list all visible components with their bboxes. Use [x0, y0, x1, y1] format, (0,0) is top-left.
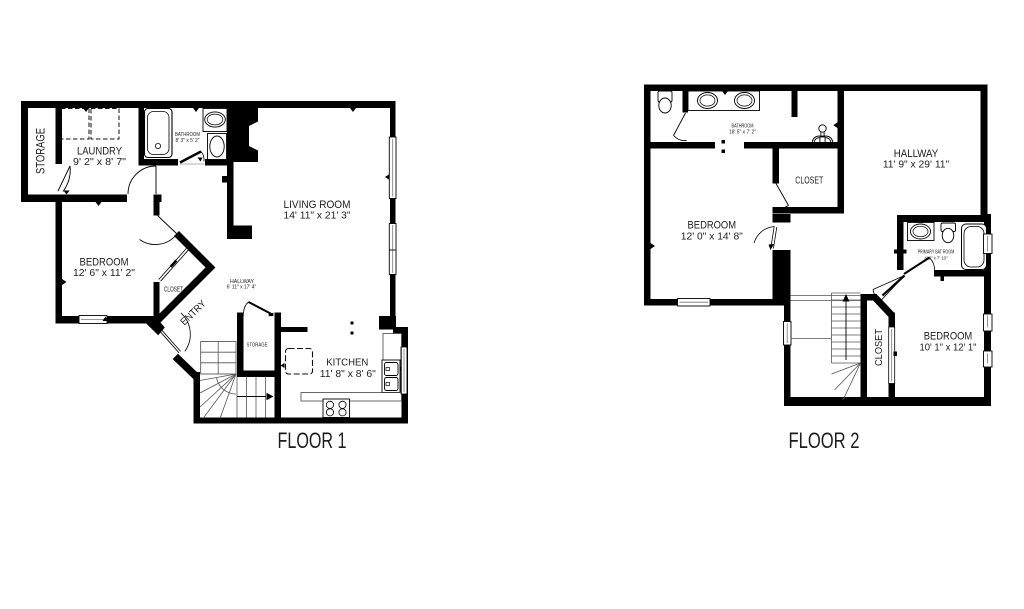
svg-text:11' 9" x 29' 11": 11' 9" x 29' 11": [883, 159, 950, 170]
svg-text:KITCHEN: KITCHEN: [326, 358, 368, 369]
svg-text:STORAGE: STORAGE: [36, 128, 48, 174]
svg-text:BEDROOM: BEDROOM: [688, 219, 737, 231]
svg-text:BEDROOM: BEDROOM: [80, 257, 129, 269]
svg-text:STORAGE: STORAGE: [247, 342, 268, 348]
svg-text:8' 3" x 5' 2": 8' 3" x 5' 2": [176, 138, 200, 144]
svg-text:14' 11" x 21' 3": 14' 11" x 21' 3": [284, 211, 351, 222]
svg-text:FLOOR 2: FLOOR 2: [789, 428, 860, 453]
svg-text:12' 6" x 11' 2": 12' 6" x 11' 2": [73, 268, 135, 279]
svg-text:HALLWAY: HALLWAY: [894, 148, 939, 160]
svg-text:CLOSET: CLOSET: [795, 175, 823, 186]
svg-text:10' 1" x 12' 1": 10' 1" x 12' 1": [920, 343, 977, 354]
svg-text:11' 8" x 8' 6": 11' 8" x 8' 6": [320, 369, 376, 380]
svg-text:CLOSET: CLOSET: [874, 329, 885, 366]
svg-text:LIVING ROOM: LIVING ROOM: [284, 199, 351, 211]
svg-text:6' 11" x 17' 4": 6' 11" x 17' 4": [227, 284, 257, 290]
svg-text:BEDROOM: BEDROOM: [924, 331, 973, 343]
svg-text:18' 5" x 7' 2": 18' 5" x 7' 2": [729, 130, 756, 136]
svg-text:PRIMARY BAT ROOM: PRIMARY BAT ROOM: [918, 250, 955, 256]
svg-text:CLOSET: CLOSET: [164, 287, 183, 294]
svg-text:9' 2" x 8' 7": 9' 2" x 8' 7": [73, 157, 126, 168]
svg-text:FLOOR 1: FLOOR 1: [278, 428, 347, 453]
svg-text:12' 0" x 14' 8": 12' 0" x 14' 8": [681, 231, 743, 242]
svg-text:4' 2" x 7' 10": 4' 2" x 7' 10": [925, 256, 948, 262]
